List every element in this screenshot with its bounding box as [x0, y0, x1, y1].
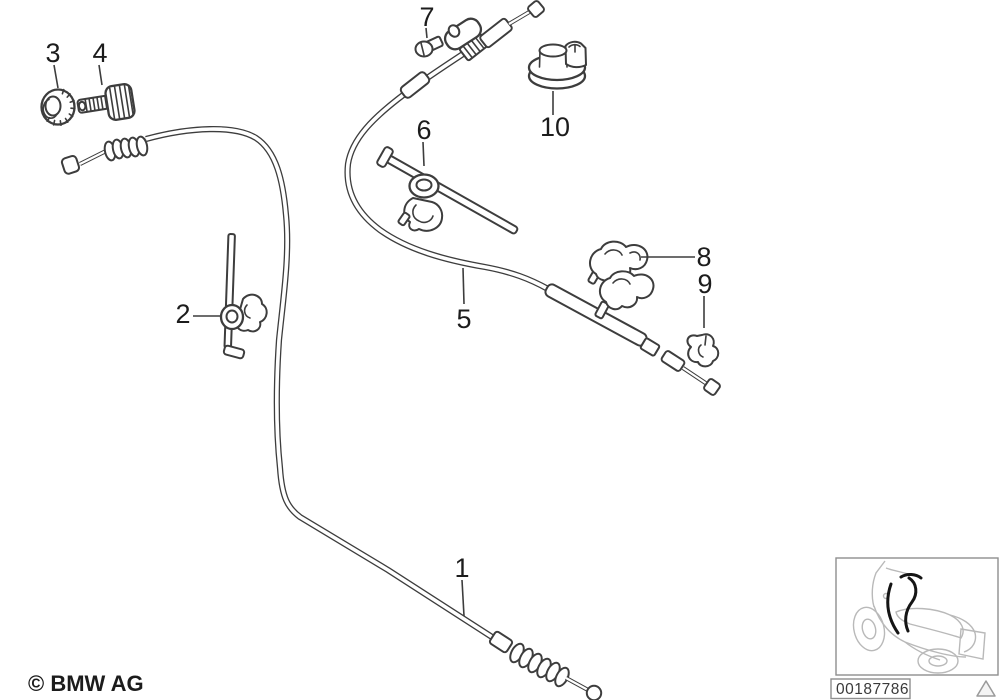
callout-8[interactable]: 8 — [696, 242, 711, 272]
part-6-cable-tie — [376, 146, 518, 234]
part-3-knurled-nut — [42, 90, 75, 126]
callout-9[interactable]: 9 — [697, 269, 712, 299]
cable1-top-spring — [103, 136, 149, 162]
callout-1[interactable]: 1 — [454, 553, 469, 583]
part-number-box: 00187786 — [831, 679, 910, 699]
cable1-end-nipple — [587, 686, 601, 700]
callout-10[interactable]: 10 — [540, 112, 570, 142]
part-4-adjusting-screw — [77, 83, 135, 121]
callout-2[interactable]: 2 — [175, 299, 190, 329]
callout-3[interactable]: 3 — [45, 38, 60, 68]
neck-top — [540, 45, 567, 57]
cable5-upper-sleeve — [399, 71, 431, 100]
part-9-cable-clip — [687, 334, 718, 366]
part-1-bowden-cable — [61, 129, 601, 700]
callout-6[interactable]: 6 — [416, 115, 431, 145]
cable5-top-nipple — [527, 0, 545, 18]
cable1-bottom-spring — [507, 642, 571, 689]
cable5-adjuster-sleeve — [661, 350, 686, 372]
callout-7[interactable]: 7 — [419, 2, 434, 32]
clip-body — [687, 334, 718, 366]
part-7-screw — [416, 36, 444, 56]
part-number-text: 00187786 — [836, 681, 909, 698]
clip-body — [404, 198, 442, 231]
warning-triangle-icon — [977, 681, 995, 696]
strap — [224, 234, 234, 348]
parts-diagram: 1 2 3 4 5 6 7 8 9 10 © BMW AG — [0, 0, 1000, 700]
part-10-grommet — [529, 42, 586, 89]
cable1-top-nipple — [61, 155, 80, 175]
location-thumbnail — [836, 558, 998, 675]
copyright-text: © BMW AG — [28, 671, 144, 696]
cable5-adjuster-barrel — [479, 18, 513, 49]
callout-4[interactable]: 4 — [92, 38, 107, 68]
strap-end — [223, 345, 245, 359]
part-2-cable-tie — [221, 234, 267, 359]
callout-5[interactable]: 5 — [456, 304, 471, 334]
